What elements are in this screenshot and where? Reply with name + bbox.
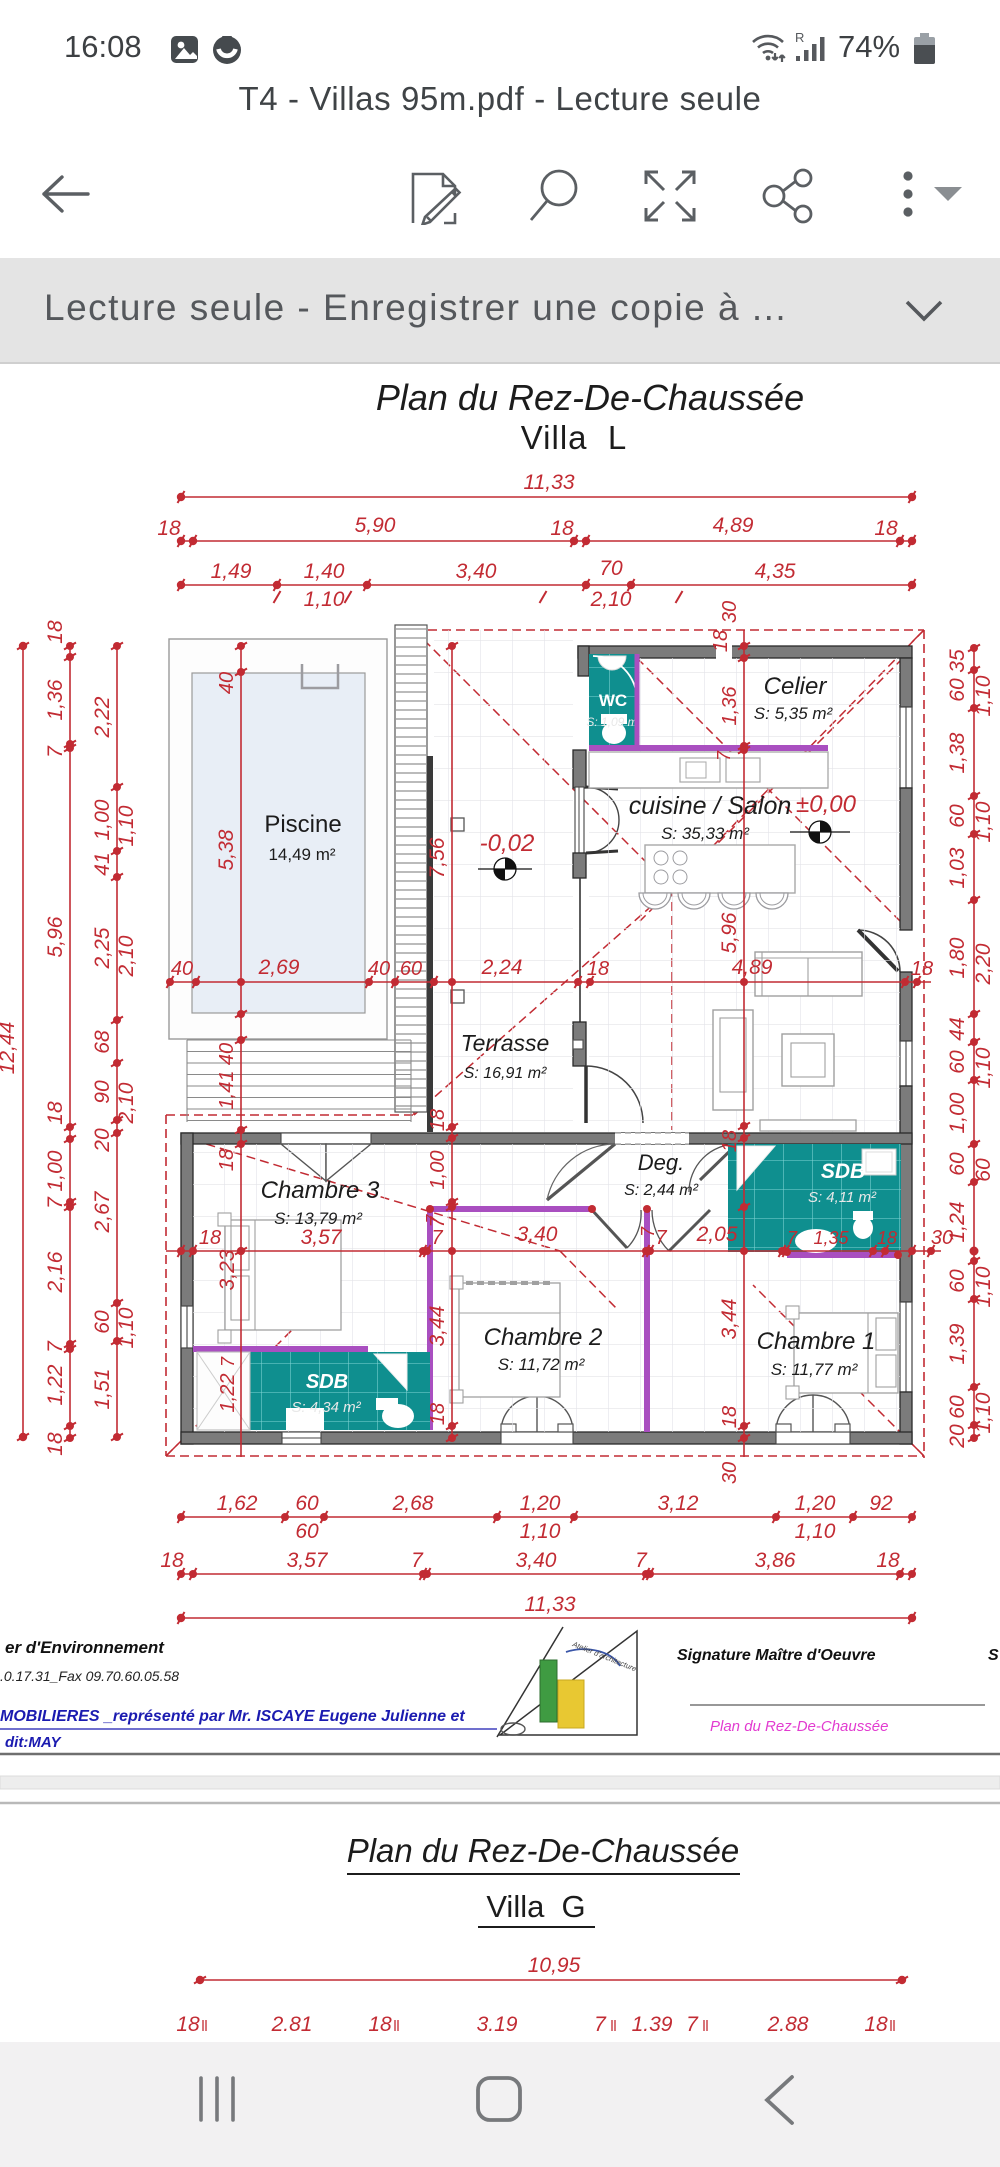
- svg-text:30: 30: [931, 1227, 953, 1249]
- svg-text:7: 7: [44, 1196, 67, 1209]
- svg-text:18: 18: [427, 1109, 449, 1131]
- svg-text:18: 18: [199, 1227, 221, 1249]
- svg-text:60: 60: [946, 1152, 969, 1176]
- svg-text:1,20: 1,20: [795, 1492, 836, 1515]
- svg-text:2,20: 2,20: [972, 943, 995, 985]
- svg-text:1,40: 1,40: [304, 560, 345, 583]
- svg-text:S: 11,77 m²: S: 11,77 m²: [771, 1360, 859, 1379]
- svg-text:SDB: SDB: [306, 1371, 348, 1393]
- svg-text:2.88: 2.88: [767, 2013, 809, 2036]
- svg-text:2.81: 2.81: [271, 2013, 313, 2036]
- svg-text:4,89: 4,89: [732, 956, 773, 979]
- svg-text:18: 18: [44, 620, 67, 644]
- svg-text:18: 18: [876, 1549, 900, 1572]
- svg-text:Deg.: Deg.: [638, 1150, 684, 1175]
- svg-text:1,36: 1,36: [719, 686, 741, 726]
- svg-text:35: 35: [946, 649, 969, 673]
- svg-text:7: 7: [655, 1227, 667, 1249]
- svg-text:92: 92: [869, 1492, 893, 1515]
- svg-text:5,96: 5,96: [718, 912, 741, 953]
- svg-text:Signature Maître d'Oeuvre: Signature Maître d'Oeuvre: [677, 1647, 876, 1664]
- svg-text:18: 18: [550, 517, 574, 540]
- svg-text:3,44: 3,44: [426, 1306, 449, 1347]
- svg-text:4,89: 4,89: [713, 514, 754, 537]
- svg-text:18: 18: [368, 2013, 392, 2036]
- svg-text:7,56: 7,56: [426, 837, 449, 878]
- svg-text:1,00: 1,00: [427, 1151, 449, 1190]
- svg-text:1,62: 1,62: [217, 1492, 258, 1515]
- svg-text:Plan du Rez-De-Chaussée: Plan du Rez-De-Chaussée: [376, 377, 804, 418]
- svg-text:2,68: 2,68: [392, 1492, 434, 1515]
- svg-text:20: 20: [946, 1424, 969, 1449]
- svg-text:1,80: 1,80: [946, 937, 969, 978]
- svg-text:10,95: 10,95: [528, 1954, 581, 1977]
- svg-text:Plan du Rez-De-Chaussée: Plan du Rez-De-Chaussée: [710, 1718, 888, 1735]
- svg-text:.0.17.31_Fax 09.70.60.05.58: .0.17.31_Fax 09.70.60.05.58: [0, 1668, 179, 1684]
- svg-text:60: 60: [295, 1520, 319, 1543]
- svg-text:1,10: 1,10: [972, 1266, 995, 1307]
- svg-text:2,16: 2,16: [44, 1251, 67, 1293]
- svg-text:er d'Environnement: er d'Environnement: [5, 1638, 165, 1657]
- svg-text:2,69: 2,69: [258, 956, 300, 979]
- svg-text:7: 7: [787, 1228, 798, 1248]
- svg-text:18: 18: [710, 630, 732, 652]
- svg-text:18: 18: [44, 1101, 67, 1125]
- svg-text:18: 18: [877, 1228, 897, 1248]
- svg-text:30: 30: [719, 1462, 741, 1484]
- svg-text:1,41: 1,41: [216, 1071, 238, 1110]
- svg-text:60: 60: [946, 1395, 969, 1419]
- svg-text:1,22: 1,22: [44, 1364, 67, 1405]
- svg-text:1,10: 1,10: [972, 801, 995, 842]
- svg-text:1,10: 1,10: [115, 805, 138, 846]
- svg-text:1,10: 1,10: [972, 675, 995, 716]
- svg-text:7: 7: [427, 1216, 449, 1228]
- svg-text:60: 60: [946, 1269, 969, 1293]
- svg-text:7: 7: [714, 750, 734, 761]
- svg-text:3.19: 3.19: [477, 2013, 518, 2036]
- svg-text:1,00: 1,00: [91, 799, 114, 840]
- svg-text:40: 40: [216, 1043, 238, 1065]
- svg-text:3,57: 3,57: [287, 1549, 329, 1572]
- svg-text:2,25: 2,25: [91, 927, 114, 969]
- svg-text:1,10: 1,10: [795, 1520, 836, 1543]
- svg-text:1.39: 1.39: [632, 2013, 673, 2036]
- svg-text:1,39: 1,39: [946, 1323, 969, 1364]
- svg-text:-0,02: -0,02: [480, 830, 535, 857]
- svg-text:2,10: 2,10: [115, 935, 138, 977]
- svg-text:18: 18: [587, 958, 609, 980]
- svg-text:18: 18: [719, 1406, 741, 1428]
- svg-text:2,24: 2,24: [481, 956, 523, 979]
- svg-text:11,33: 11,33: [524, 471, 575, 494]
- svg-text:12,44: 12,44: [0, 1022, 19, 1075]
- svg-text:1,20: 1,20: [520, 1492, 561, 1515]
- svg-text:Chambre 3: Chambre 3: [261, 1177, 380, 1204]
- svg-text:Chambre 1: Chambre 1: [757, 1328, 876, 1355]
- svg-text:3,86: 3,86: [755, 1549, 796, 1572]
- svg-text:3,44: 3,44: [718, 1299, 741, 1340]
- svg-text:1,10: 1,10: [115, 1307, 138, 1348]
- svg-text:7: 7: [686, 2013, 699, 2036]
- svg-text:2,67: 2,67: [91, 1190, 114, 1233]
- svg-text:Chambre 2: Chambre 2: [484, 1324, 603, 1351]
- svg-text:7: 7: [635, 1549, 648, 1572]
- svg-text:1,00: 1,00: [44, 1150, 67, 1191]
- svg-text:Villa L: Villa L: [521, 419, 627, 456]
- svg-text:dit:MAY: dit:MAY: [5, 1734, 63, 1751]
- svg-text:1,10: 1,10: [520, 1520, 561, 1543]
- svg-text:S: 4,34 m²: S: 4,34 m²: [291, 1399, 361, 1416]
- svg-text:18: 18: [176, 2013, 200, 2036]
- svg-text:Plan du Rez-De-Chaussée: Plan du Rez-De-Chaussée: [347, 1832, 740, 1869]
- svg-text:3,40: 3,40: [456, 560, 497, 583]
- svg-text:18: 18: [864, 2013, 888, 2036]
- svg-text:60: 60: [400, 958, 422, 980]
- svg-text:S: 16,91 m²: S: 16,91 m²: [464, 1065, 547, 1082]
- svg-text:Villa G: Villa G: [486, 1889, 585, 1924]
- svg-text:41: 41: [91, 852, 114, 875]
- svg-text:S: 5,35 m²: S: 5,35 m²: [754, 704, 834, 723]
- svg-text:S: S: [988, 1647, 999, 1664]
- svg-text:60: 60: [946, 804, 969, 828]
- svg-text:18: 18: [216, 1149, 238, 1171]
- svg-text:60: 60: [91, 1310, 114, 1334]
- svg-text:7: 7: [44, 745, 67, 758]
- svg-text:60: 60: [946, 1050, 969, 1074]
- svg-text:18: 18: [157, 517, 181, 540]
- svg-text:cuisine / Salon: cuisine / Salon: [629, 792, 792, 820]
- svg-text:70: 70: [599, 557, 623, 580]
- svg-text:5,90: 5,90: [355, 514, 396, 537]
- svg-text:60: 60: [972, 1158, 995, 1182]
- svg-text:5,96: 5,96: [44, 916, 67, 957]
- svg-text:SDB: SDB: [821, 1160, 865, 1183]
- svg-text:S: 2,44 m²: S: 2,44 m²: [624, 1182, 698, 1199]
- svg-text:1,38: 1,38: [946, 732, 969, 773]
- svg-text:1,36: 1,36: [44, 679, 67, 720]
- svg-text:3,40: 3,40: [516, 1549, 557, 1572]
- svg-text:68: 68: [91, 1030, 114, 1054]
- svg-text:3,23: 3,23: [216, 1249, 239, 1290]
- svg-text:7: 7: [594, 2013, 607, 2036]
- svg-text:11,33: 11,33: [525, 1593, 576, 1616]
- svg-text:40: 40: [216, 672, 238, 694]
- svg-text:2,22: 2,22: [91, 696, 114, 738]
- svg-text:7: 7: [44, 1340, 67, 1353]
- svg-text:7: 7: [411, 1549, 424, 1572]
- svg-text:1,10: 1,10: [972, 1047, 995, 1088]
- svg-text:14,49 m²: 14,49 m²: [268, 845, 335, 864]
- svg-text:1,35: 1,35: [813, 1228, 849, 1248]
- svg-text:S: 1,09 m: S: 1,09 m: [586, 715, 637, 729]
- svg-text:60: 60: [946, 678, 969, 702]
- svg-text:20: 20: [91, 1128, 114, 1153]
- svg-text:18: 18: [874, 517, 898, 540]
- svg-text:4,35: 4,35: [755, 560, 796, 583]
- svg-text:2,05: 2,05: [696, 1223, 738, 1246]
- svg-text:30: 30: [719, 601, 741, 623]
- svg-text:1,10: 1,10: [972, 1392, 995, 1433]
- svg-text:1,49: 1,49: [211, 560, 252, 583]
- svg-text:1,03: 1,03: [946, 847, 969, 888]
- svg-text:S: 11,72 m²: S: 11,72 m²: [498, 1355, 586, 1374]
- svg-text:3,57: 3,57: [301, 1226, 343, 1249]
- svg-text:2,10: 2,10: [590, 588, 632, 611]
- svg-text:40: 40: [171, 958, 193, 980]
- svg-text:44: 44: [946, 1017, 969, 1040]
- svg-text:7: 7: [218, 1356, 238, 1367]
- svg-text:2,10: 2,10: [115, 1082, 138, 1124]
- svg-text:Piscine: Piscine: [264, 811, 341, 838]
- svg-text:±0,00: ±0,00: [796, 791, 857, 818]
- svg-text:1,00: 1,00: [946, 1092, 969, 1133]
- svg-text:WC: WC: [599, 691, 627, 710]
- svg-text:18: 18: [160, 1549, 184, 1572]
- svg-text:3,40: 3,40: [517, 1223, 558, 1246]
- svg-text:18: 18: [44, 1432, 67, 1456]
- svg-text:90: 90: [91, 1080, 114, 1104]
- svg-text:7: 7: [431, 1227, 443, 1249]
- svg-text:Terrasse: Terrasse: [461, 1030, 550, 1056]
- svg-text:18: 18: [911, 958, 933, 980]
- svg-text:R: R: [795, 30, 804, 45]
- svg-text:MOBILIERES _représenté par Mr.: MOBILIERES _représenté par Mr. ISCAYE Eu…: [0, 1708, 465, 1725]
- svg-text:1,22: 1,22: [217, 1374, 239, 1413]
- svg-text:S: 35,33 m²: S: 35,33 m²: [661, 824, 750, 843]
- svg-text:18: 18: [719, 1130, 741, 1152]
- svg-text:1,51: 1,51: [91, 1369, 114, 1410]
- svg-text:60: 60: [295, 1492, 319, 1515]
- svg-text:3,12: 3,12: [658, 1492, 699, 1515]
- svg-text:40: 40: [368, 958, 390, 980]
- svg-text:18: 18: [427, 1403, 449, 1425]
- svg-text:1,10: 1,10: [304, 588, 345, 611]
- svg-text:Celier: Celier: [764, 673, 828, 700]
- svg-text:S: 4,11 m²: S: 4,11 m²: [808, 1189, 877, 1206]
- svg-text:5,38: 5,38: [215, 829, 238, 870]
